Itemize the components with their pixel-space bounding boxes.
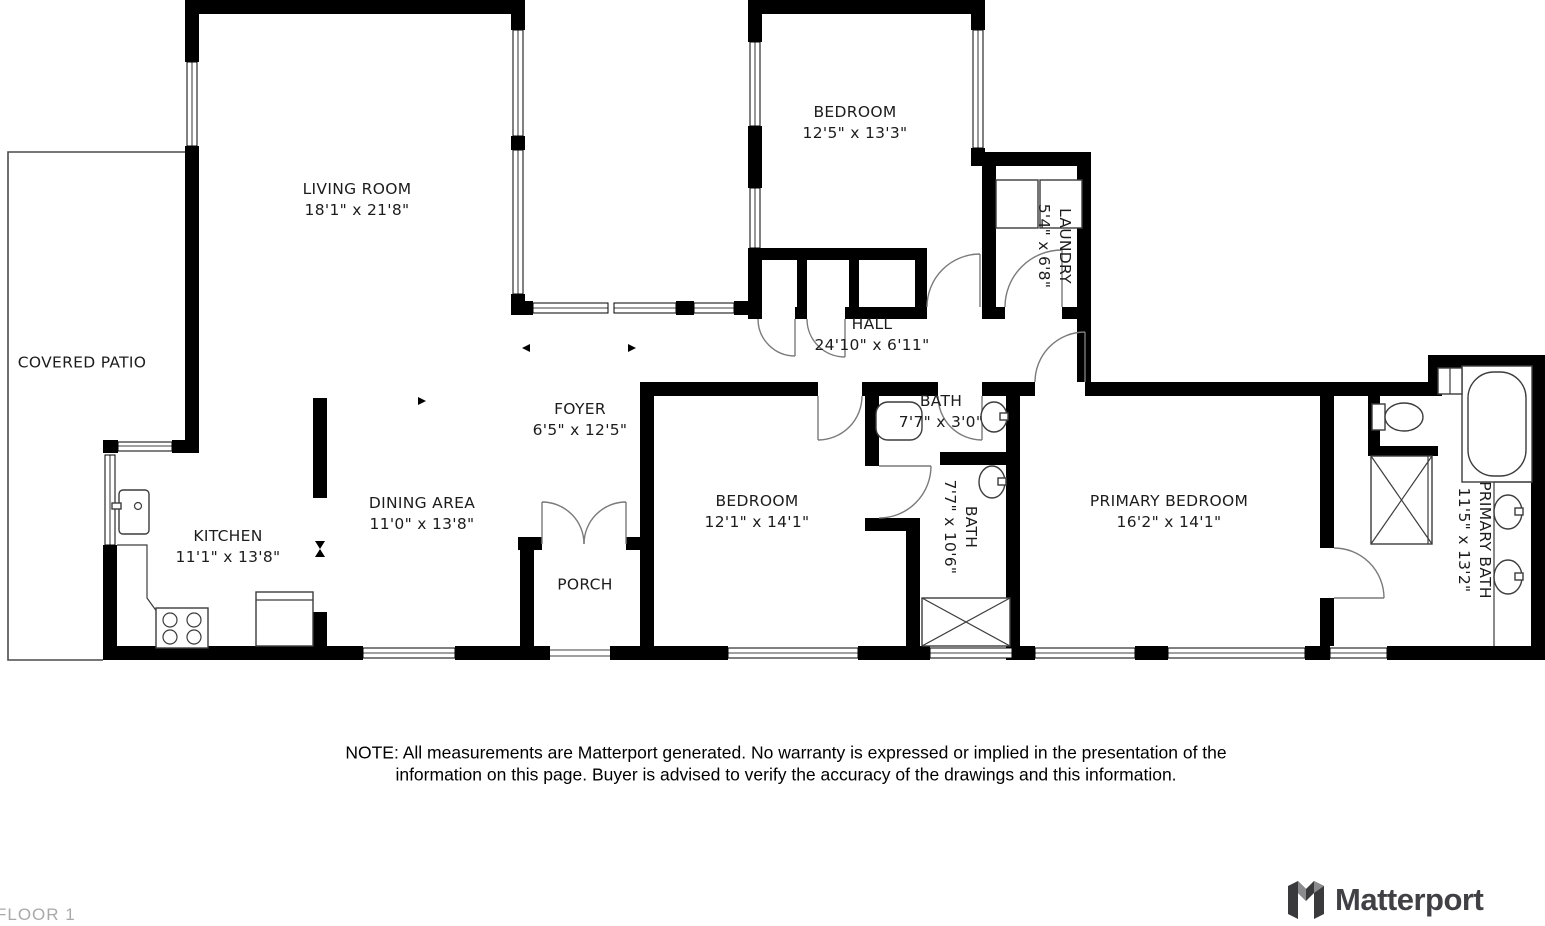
bath2-sink <box>979 466 1006 498</box>
floor-label: FLOOR 1 <box>0 905 76 925</box>
room-label-bedroom-2: BEDROOM12'1" x 14'1" <box>705 491 810 533</box>
room-label-foyer: FOYER6'5" x 12'5" <box>533 399 628 441</box>
refrigerator <box>256 592 313 646</box>
room-label-laundry: LAUNDRY5'4" x 6'8" <box>1033 204 1075 289</box>
room-label-porch: PORCH <box>557 575 613 596</box>
room-label-covered-patio: COVERED PATIO <box>18 353 146 374</box>
windows-layer <box>105 30 1387 658</box>
room-label-hall: HALL24'10" x 6'11" <box>814 314 929 356</box>
matterport-wordmark: Matterport <box>1335 882 1483 918</box>
matterport-logo: Matterport <box>1286 880 1483 920</box>
primary-sinks <box>1494 482 1531 646</box>
toilet <box>1372 403 1423 431</box>
floor-plan-drawing <box>0 0 1545 926</box>
room-label-bath-2: BATH7'7" x 10'6" <box>939 480 981 575</box>
room-label-bath: BATH7'7" x 3'0" <box>899 391 984 433</box>
room-label-bedroom: BEDROOM12'5" x 13'3" <box>803 102 908 144</box>
matterport-logo-icon <box>1286 880 1326 920</box>
stove <box>156 608 208 648</box>
bath-sink <box>981 402 1008 432</box>
primary-bathtub <box>1462 366 1532 482</box>
room-label-living-room: LIVING ROOM18'1" x 21'8" <box>303 179 412 221</box>
covered-patio-outline <box>8 152 185 660</box>
room-label-kitchen: KITCHEN11'1" x 13'8" <box>176 526 281 568</box>
floor-plan-canvas: COVERED PATIO LIVING ROOM18'1" x 21'8" B… <box>0 0 1545 926</box>
disclaimer-note: NOTE: All measurements are Matterport ge… <box>345 743 1226 786</box>
linen-closet <box>1438 368 1462 394</box>
room-label-dining-area: DINING AREA11'0" x 13'8" <box>369 493 475 535</box>
room-label-primary-bath: PRIMARY BATH11'5" x 13'2" <box>1453 481 1495 599</box>
kitchen-sink <box>112 490 149 534</box>
room-label-primary-bedroom: PRIMARY BEDROOM16'2" x 14'1" <box>1090 491 1248 533</box>
primary-shower <box>1371 456 1432 544</box>
bath2-shower <box>922 598 1010 646</box>
